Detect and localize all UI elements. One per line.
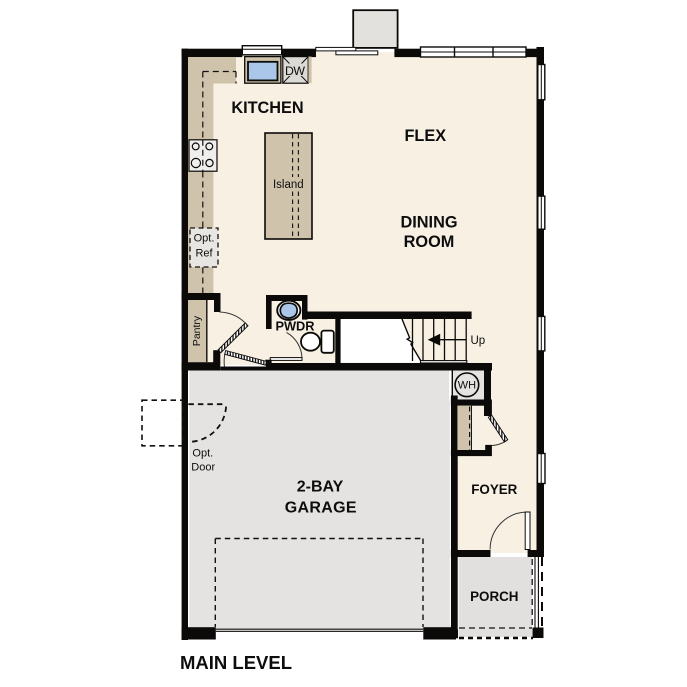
svg-text:Up: Up <box>471 335 486 347</box>
svg-text:FOYER: FOYER <box>471 482 517 497</box>
svg-text:DW: DW <box>285 64 305 78</box>
svg-text:PORCH: PORCH <box>470 589 518 604</box>
svg-text:Opt.: Opt. <box>194 233 215 245</box>
svg-text:MAIN LEVEL: MAIN LEVEL <box>180 652 292 673</box>
svg-text:WH: WH <box>458 380 476 392</box>
svg-text:Opt.: Opt. <box>192 448 213 460</box>
svg-text:KITCHEN: KITCHEN <box>231 99 303 117</box>
svg-text:PWDR: PWDR <box>275 319 314 334</box>
svg-text:FLEX: FLEX <box>404 127 446 145</box>
svg-text:Pantry: Pantry <box>191 315 203 346</box>
svg-text:Ref: Ref <box>195 248 213 260</box>
svg-text:Door: Door <box>191 462 215 474</box>
svg-text:GARAGE: GARAGE <box>285 499 357 516</box>
svg-text:Island: Island <box>273 179 304 191</box>
svg-text:2-BAY: 2-BAY <box>297 479 344 496</box>
svg-text:ROOM: ROOM <box>404 233 455 251</box>
svg-text:DINING: DINING <box>401 214 458 232</box>
